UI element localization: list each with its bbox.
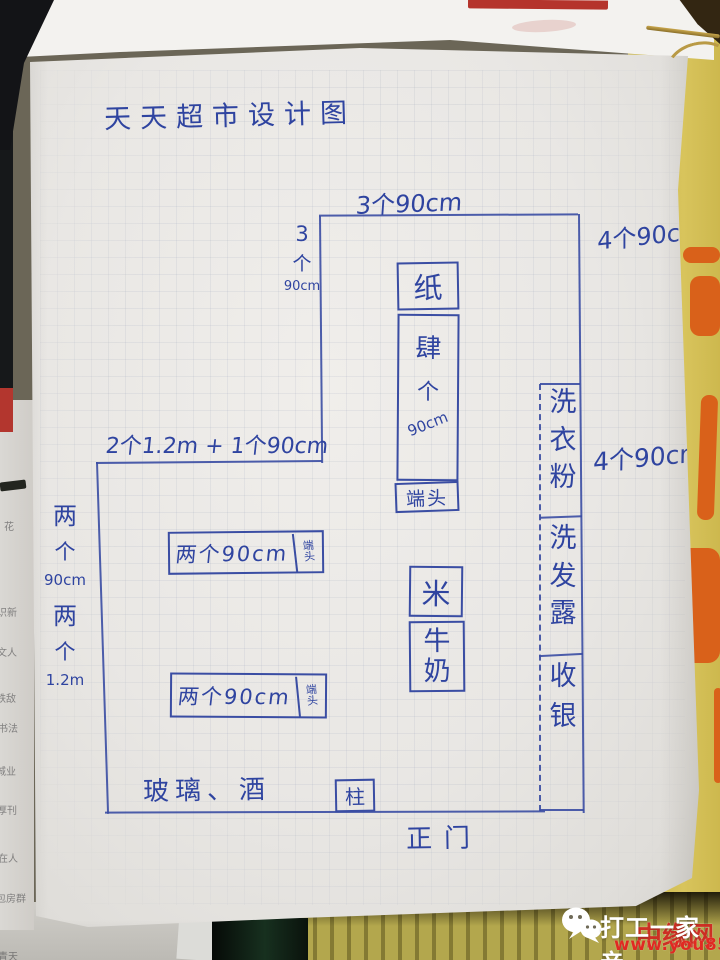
right-column-dashed-line [539, 384, 541, 811]
section-label: 洗 [550, 524, 577, 554]
endcap-char: 头 [303, 549, 315, 563]
diagram-title: 天天超市设计图 [104, 91, 357, 137]
dimension-text: 90cm [44, 571, 86, 589]
dimension-text: 90cm [284, 279, 320, 294]
cashier-section: 收 银 [546, 662, 580, 731]
section-label: 银 [550, 702, 577, 732]
ink-smudge [512, 18, 577, 33]
dimension-text: 1.2m [46, 671, 84, 689]
section-label: 洗 [550, 388, 577, 418]
shelf-label: 奶 [424, 656, 451, 686]
endcap-char: 头 [306, 693, 318, 707]
left-dimension-label-a: 两 个 90cm [36, 496, 94, 589]
dimension-text: 两 [53, 596, 77, 631]
shelf-row-1: 两个90cm 端 头 [168, 530, 324, 575]
shelf-label: 两个90cm [168, 532, 296, 572]
right-column-bottom-line [540, 809, 584, 811]
section-label: 粉 [550, 463, 577, 493]
pillar-box: 柱 [335, 779, 376, 813]
shelf-label: 牛 [423, 627, 450, 657]
shelf-row-2: 两个90cm 端 头 [170, 672, 327, 718]
poster-graphic [690, 276, 720, 336]
middle-width-label: 2个1.2m + 1个90cm [104, 428, 330, 460]
milk-box: 牛 奶 [409, 621, 466, 692]
red-mark-on-underlying-page [0, 388, 13, 432]
middle-wall-line [96, 460, 322, 464]
center-endcap-box: 端头 [394, 481, 459, 513]
printed-text-fragment: 识新 [0, 604, 17, 619]
printed-text-fragment: 书法 [0, 720, 18, 735]
section-label: 发 [550, 562, 577, 592]
dimension-text: 个 [292, 249, 311, 276]
paper-shelf-box: 纸 [397, 261, 460, 310]
poster-graphic [683, 247, 720, 263]
printed-text-fragment: 包房群 [0, 890, 26, 905]
endcap-label: 端头 [406, 483, 449, 511]
notebook-page: 天天超市设计图 3个90cm 4个90cm 3 个 90cm 2个1.2m + … [0, 0, 720, 960]
dimension-text: 两 [53, 496, 77, 531]
watermark-site-url: www.you85.com [614, 935, 720, 955]
printed-text-fragment: 铁敌 [0, 690, 16, 705]
printed-text-fragment: 文人 [0, 644, 17, 659]
shelf-label: 两个90cm [170, 674, 300, 716]
printed-text-fragment: 花 [4, 518, 14, 533]
section-label: 衣 [550, 426, 577, 456]
floor-plan-drawing: 天天超市设计图 3个90cm 4个90cm 3 个 90cm 2个1.2m + … [0, 0, 720, 960]
left-dimension-label-b: 两 个 1.2m [36, 596, 94, 689]
left-wall-line [96, 462, 109, 814]
notebook-photo: 花 识新 文人 铁敌 书法 城业 厚刊 在人 包房群 青天 天天超市设计图 3个… [0, 0, 720, 960]
right-column-divider [539, 653, 583, 657]
rice-box: 米 [409, 566, 464, 618]
poster-graphic [714, 688, 720, 783]
section-label: 收 [550, 662, 577, 692]
red-printed-bar [468, 0, 608, 10]
shelf-label: 90cm [405, 408, 451, 440]
shelf-label: 米 [421, 570, 450, 612]
laundry-detergent-section: 洗 衣 粉 [546, 388, 580, 493]
dimension-text: 3 [295, 222, 308, 246]
endcap-label: 端 头 [292, 531, 324, 573]
shampoo-section: 洗 发 露 [546, 524, 580, 629]
pillar-label: 柱 [345, 781, 366, 810]
dimension-text: 个 [55, 636, 76, 666]
section-label: 露 [550, 599, 577, 629]
right-column-divider [540, 515, 582, 518]
shelf-label: 个 [417, 374, 439, 406]
printed-text-fragment: 厚刊 [0, 802, 17, 817]
poster-graphic [697, 395, 718, 521]
shelf-label: 纸 [413, 265, 443, 307]
printed-text-fragment: 在人 [0, 850, 18, 865]
printed-text-fragment: 城业 [0, 763, 16, 778]
glass-wine-label: 玻璃、酒 [143, 769, 272, 808]
right-column-top-line [540, 383, 580, 385]
left-top-dimension-label: 3 个 90cm [282, 222, 322, 294]
wechat-icon [560, 905, 604, 949]
center-shelf-box: 肆 个 90cm [396, 314, 459, 481]
upper-left-wall-line [319, 216, 323, 463]
bottom-wall-line [105, 810, 545, 813]
endcap-label: 端 头 [295, 674, 327, 718]
printed-text-fragment: 青天 [0, 948, 18, 960]
main-entrance-label: 正门 [406, 817, 483, 855]
background-object [212, 918, 308, 960]
dimension-text: 个 [55, 536, 76, 566]
shelf-label: 肆 [415, 328, 441, 365]
